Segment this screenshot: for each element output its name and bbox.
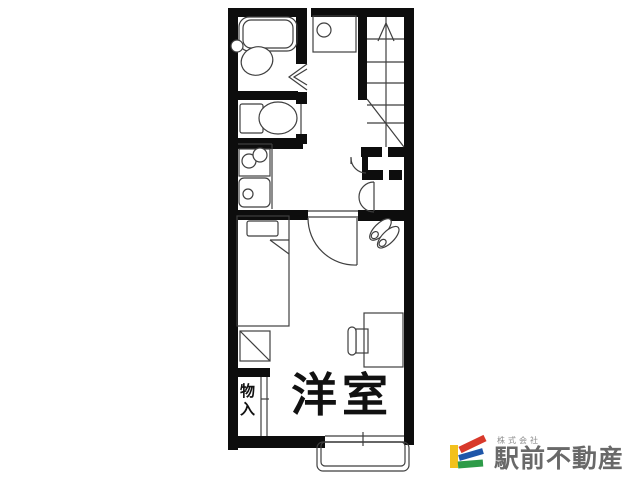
wall-segment	[404, 8, 414, 445]
bed-icon	[237, 216, 289, 326]
bathtub-icon	[231, 17, 297, 52]
logo-red-stripe	[460, 438, 485, 450]
wall-segment	[358, 8, 367, 100]
staircase-icon	[367, 17, 404, 147]
folding-bath-door-icon	[289, 64, 307, 90]
company-name: 駅前不動産	[494, 447, 624, 472]
side-table-icon	[240, 331, 270, 361]
kitchen-sink-icon	[239, 178, 270, 207]
closet-label: 物入	[239, 383, 254, 419]
wall-segment	[228, 91, 298, 100]
company-logo-mark-icon	[447, 428, 489, 472]
wall-segment	[296, 92, 307, 104]
desk-icon	[364, 313, 403, 367]
balcony-icon	[317, 442, 409, 471]
wall-segment	[296, 8, 307, 64]
wall-segment	[388, 147, 404, 157]
sliding-window-icon	[325, 432, 404, 446]
wall-segment	[235, 368, 270, 377]
room-door-swing	[308, 211, 358, 265]
chair-icon	[348, 327, 368, 355]
logo-green-stripe	[458, 463, 483, 465]
bath-faucet-icon	[231, 40, 243, 52]
wall-segment	[362, 147, 368, 180]
washing-machine-icon	[313, 16, 356, 52]
company-logo-text: 株式会社 駅前不動産	[494, 435, 624, 472]
wall-segment	[228, 8, 305, 17]
wall-segment	[296, 134, 307, 144]
floorplan-canvas: 洋室 物入 株式会社 駅前不動産	[0, 0, 640, 480]
room-label: 洋室	[291, 372, 393, 418]
pillow-icon	[247, 221, 278, 236]
closet-door-lines	[261, 377, 269, 436]
company-logo: 株式会社 駅前不動産	[447, 428, 624, 472]
wall-segment	[228, 210, 308, 220]
wall-segment	[358, 210, 404, 221]
toilet-icon	[240, 102, 297, 134]
wall-segment	[228, 436, 325, 448]
wall-segment	[389, 170, 402, 180]
gas-stove-icon	[239, 148, 270, 176]
